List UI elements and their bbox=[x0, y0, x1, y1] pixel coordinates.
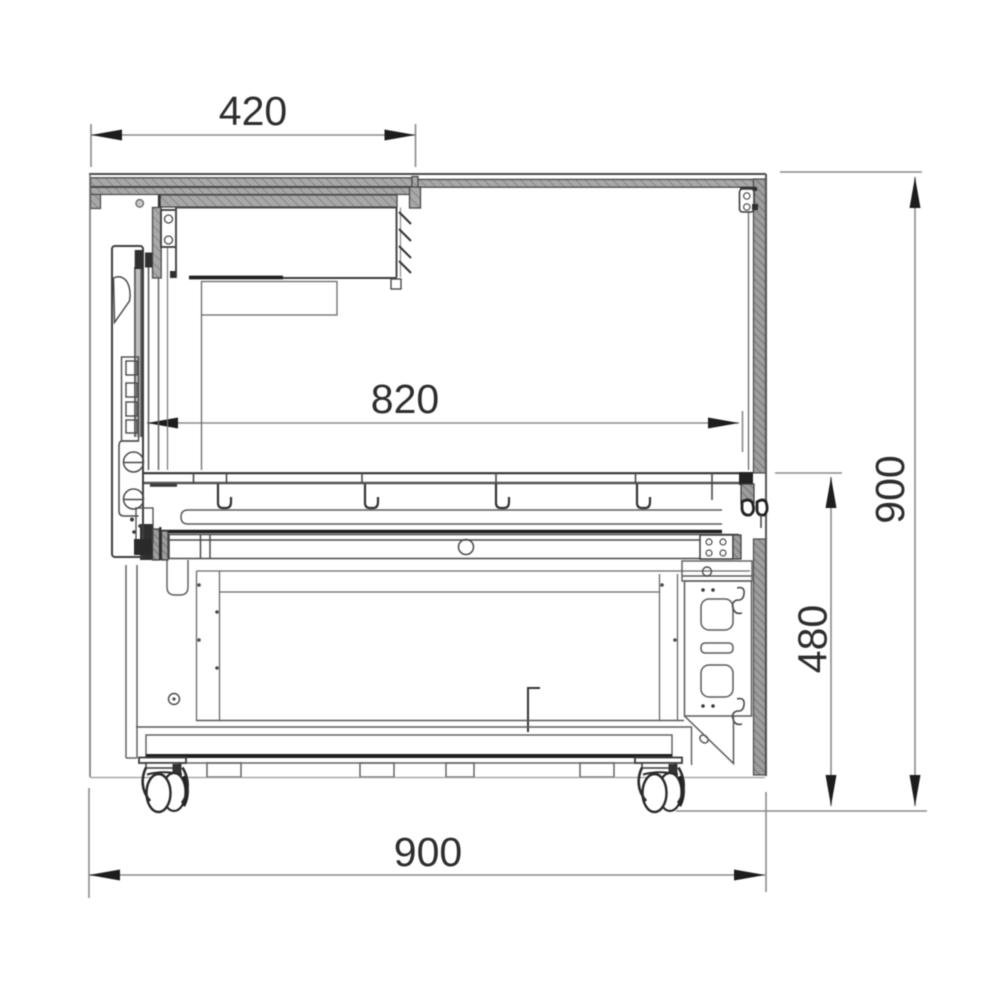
svg-text:420: 420 bbox=[219, 88, 287, 134]
svg-text:900: 900 bbox=[867, 455, 913, 523]
svg-text:900: 900 bbox=[394, 829, 462, 875]
svg-text:480: 480 bbox=[790, 605, 836, 673]
svg-text:820: 820 bbox=[371, 376, 439, 422]
